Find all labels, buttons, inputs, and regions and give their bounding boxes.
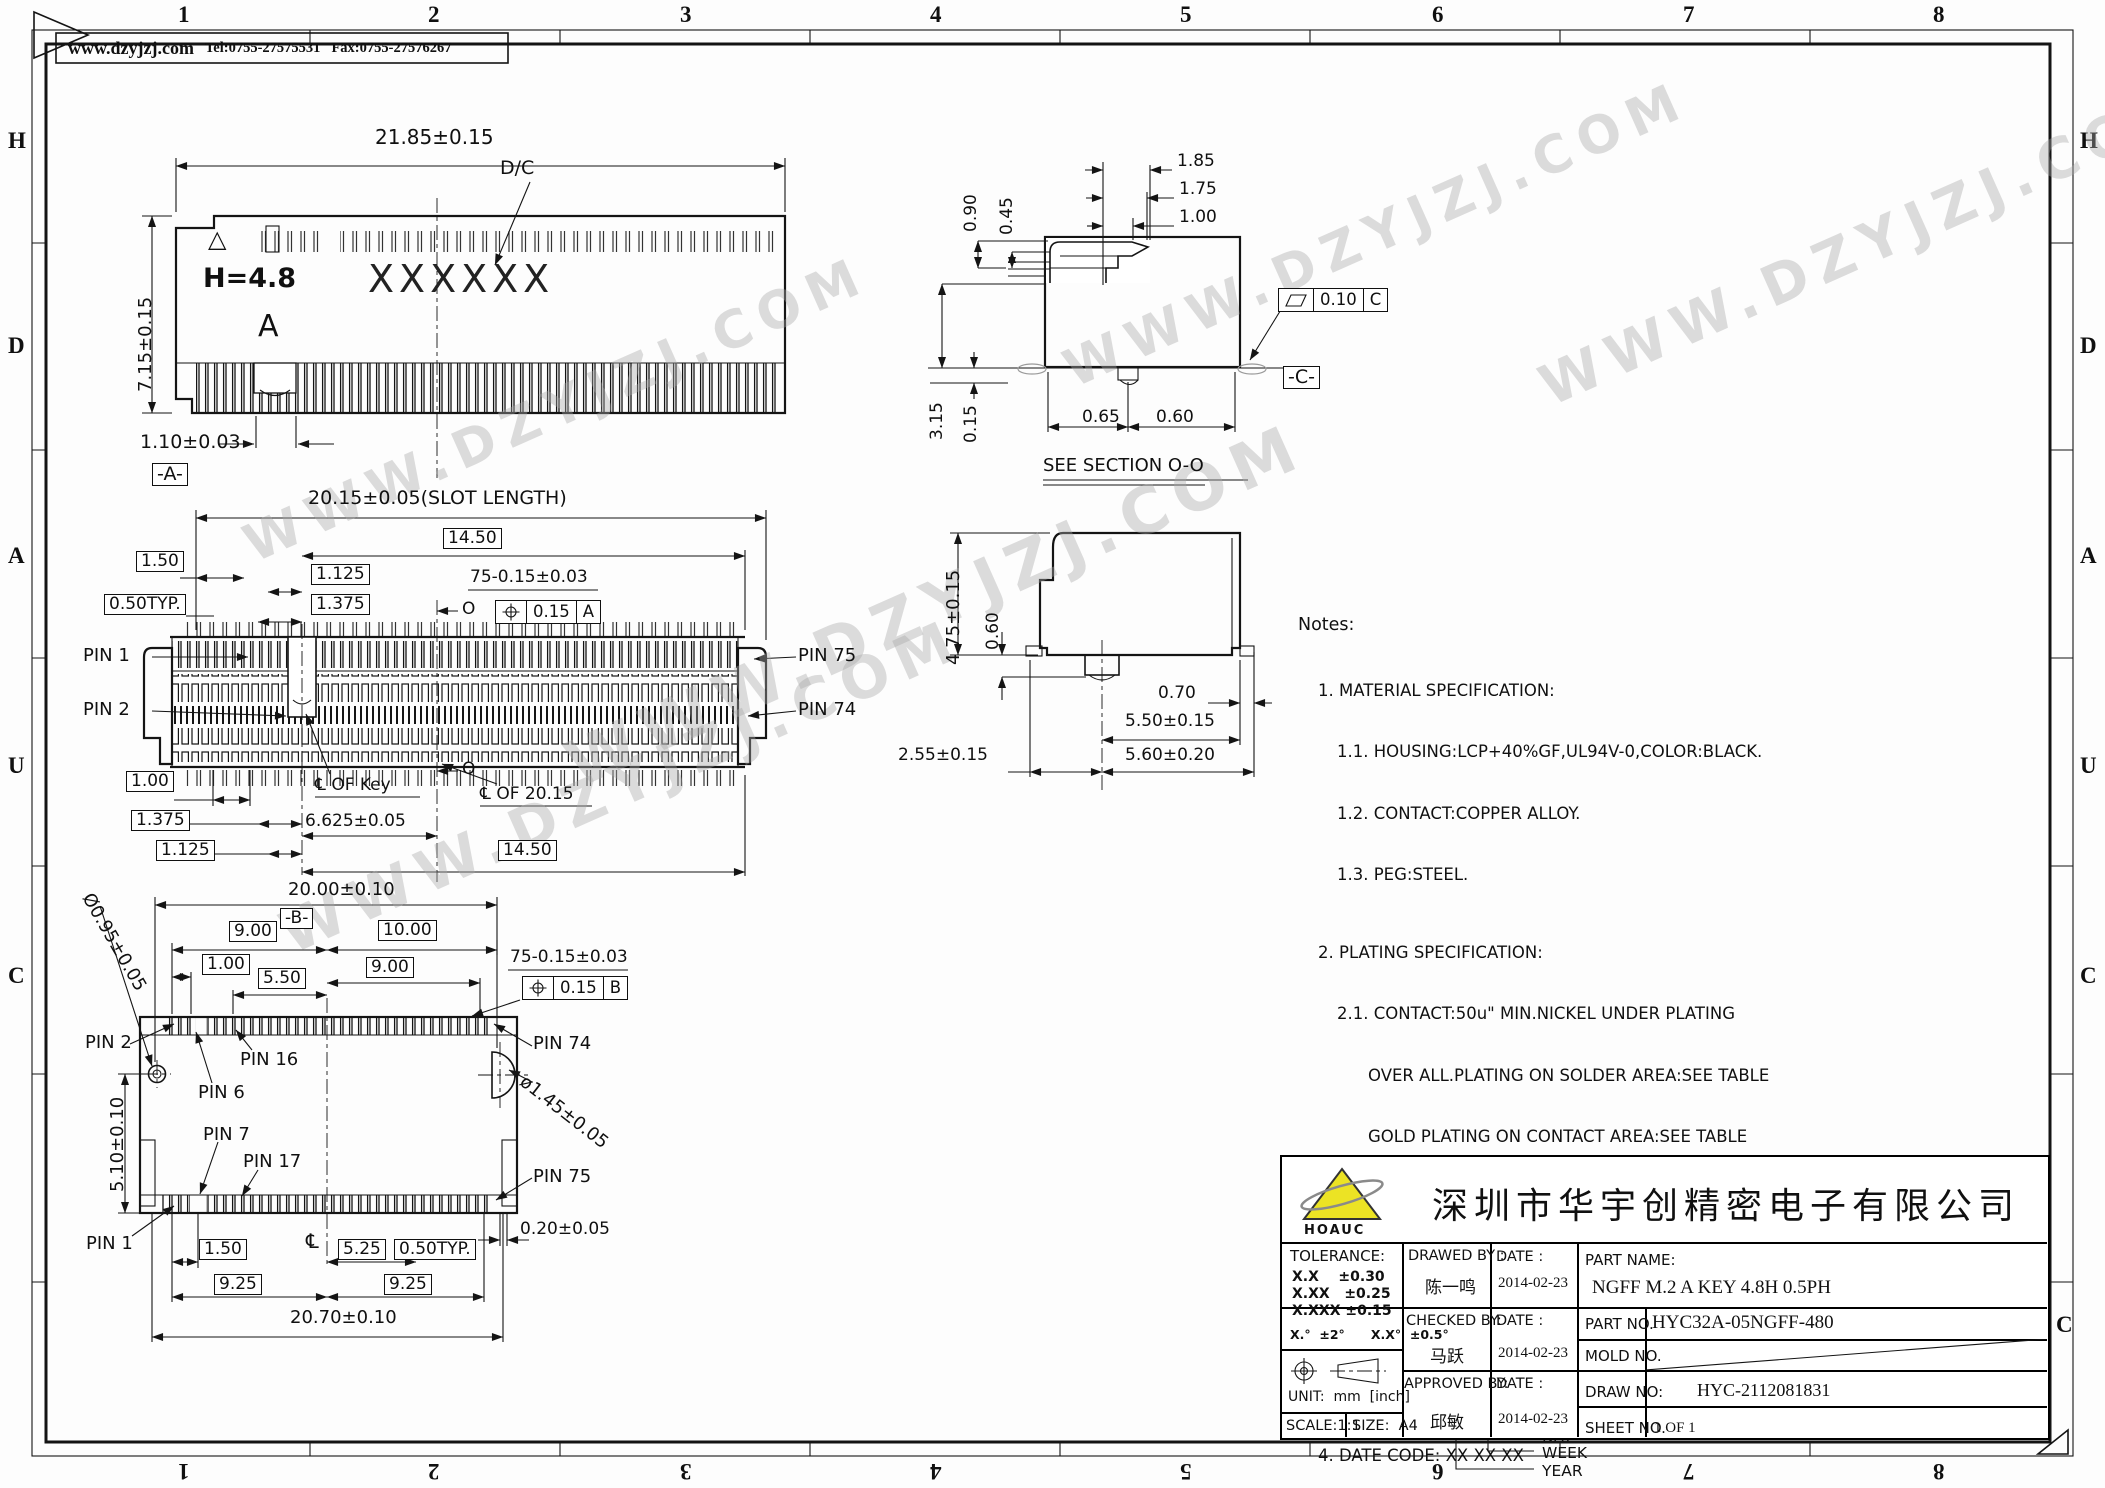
parallelism-icon [1279, 293, 1313, 308]
dim-1-00: 1.00 [202, 954, 250, 975]
dim-14-50-top: 14.50 [443, 528, 502, 549]
dim-20-00: 20.00±0.10 [288, 880, 395, 900]
logo-text: HOAUC [1304, 1223, 1365, 1238]
zone-number-top: 7 [1683, 2, 1695, 28]
company-logo-icon [1292, 1167, 1392, 1225]
pin-1-label: PIN 1 [86, 1234, 133, 1254]
centerline-of-key-label: ℄ OF Key [315, 776, 391, 795]
dim-0-65: 0.65 [1082, 408, 1120, 427]
tolerance-row: X.XX ±0.25 [1292, 1286, 1391, 1302]
datum-ref: A [576, 601, 600, 623]
zone-letter-left: D [8, 333, 25, 359]
dim-1-375-top: 1.375 [311, 594, 370, 615]
notes-title: Notes: [1298, 615, 2046, 636]
size-label: SIZE: A4 [1352, 1418, 1418, 1434]
pin-75-label: PIN 75 [798, 646, 856, 666]
note-line: 1.3. PEG:STEEL. [1298, 865, 2046, 886]
dim-1-00: 1.00 [126, 771, 174, 792]
dim-1-85: 1.85 [1177, 152, 1215, 171]
pin-75-label: PIN 75 [533, 1167, 591, 1187]
tolerance-value: 0.10 [1313, 289, 1363, 311]
centerline-symbol: ℄ [306, 1230, 319, 1252]
zone-number-top: 4 [930, 2, 942, 28]
pin-6-label: PIN 6 [198, 1083, 245, 1103]
zone-letter-left: C [8, 963, 25, 989]
zone-letter-right: C [2080, 963, 2097, 989]
dim-5-50: 5.50 [258, 968, 306, 989]
part-no-value: HYC32A-05NGFF-480 [1652, 1312, 1834, 1334]
date-stamp-marking: XXXXXX [368, 258, 554, 301]
title-block-line [1490, 1242, 1492, 1437]
zone-number-bottom: 2 [428, 1458, 440, 1484]
drawed-by-name: 陈一鸣 [1425, 1273, 1476, 1298]
note-line: GOLD PLATING ON CONTACT AREA:SEE TABLE [1298, 1127, 2046, 1148]
dim-5-25: 5.25 [338, 1239, 386, 1260]
dim-9-00-right: 9.00 [366, 957, 414, 978]
dim-1-375-bottom: 1.375 [131, 810, 190, 831]
pin-7-label: PIN 7 [203, 1125, 250, 1145]
dim-0-15: 0.15 [962, 405, 981, 443]
position-tolerance-icon [523, 979, 553, 997]
zone-letter-right: D [2080, 333, 2097, 359]
datum-ref: C [1363, 289, 1388, 311]
angle-tolerance-row: X.° ±2° X.X° ±0.5° [1290, 1327, 1449, 1342]
drawed-date: 2014-02-23 [1498, 1275, 1568, 1292]
centerline-of-slot-label: ℄ OF 20.15 [480, 785, 574, 804]
part-name-value: NGFF M.2 A KEY 4.8H 0.5PH [1592, 1277, 1831, 1299]
section-marker-top: O [462, 600, 475, 619]
dim-1-50: 1.50 [199, 1239, 247, 1260]
note-line: OVER ALL.PLATING ON SOLDER AREA:SEE TABL… [1298, 1066, 2046, 1087]
zone-letter-right-extra: C [2056, 1312, 2073, 1338]
checked-by-label: CHECKED BY: [1406, 1313, 1502, 1329]
dim-1-50: 1.50 [136, 551, 184, 572]
zone-letter-left: U [8, 753, 25, 779]
zone-letter-left: H [8, 128, 26, 154]
title-block-line [1282, 1412, 1402, 1414]
dim-1-00: 1.00 [1179, 208, 1217, 227]
pin-74-label: PIN 74 [798, 700, 856, 720]
zone-number-bottom: 4 [930, 1458, 942, 1484]
datum-a-box: -A- [152, 463, 188, 486]
dim-3-15: 3.15 [928, 402, 947, 440]
height-marking: H=4.8 [203, 264, 296, 294]
date-label: DATE : [1496, 1313, 1543, 1329]
dim-1-125-top: 1.125 [311, 564, 370, 585]
key-marking: A [258, 310, 279, 344]
contact-header: www.dzyjzj.com Tel:0755-27575531 Fax:075… [56, 33, 508, 63]
dim-0-60: 0.60 [1156, 408, 1194, 427]
tolerance-value: 0.15 [526, 601, 576, 623]
dim-tooth-width: 1.10±0.03 [140, 432, 241, 453]
dim-1-75: 1.75 [1179, 180, 1217, 199]
draw-no-value: HYC-2112081831 [1697, 1380, 1830, 1401]
tolerance-row: X.XXX ±0.15 [1292, 1303, 1392, 1319]
title-block-line [1402, 1370, 2047, 1372]
position-tolerance-frame-a: 0.15 A [495, 600, 601, 624]
zone-number-top: 3 [680, 2, 692, 28]
dim-slot-length: 20.15±0.05(SLOT LENGTH) [308, 488, 567, 509]
zone-number-bottom: 3 [680, 1458, 692, 1484]
dim-0-60: 0.60 [984, 612, 1003, 650]
title-block-line [1282, 1307, 2047, 1309]
fax-text: Fax:0755-27576267 [331, 40, 451, 57]
checked-by-name: 马跃 [1430, 1342, 1464, 1367]
date-code-pointer-label: D/C [500, 158, 534, 179]
part-name-label: PART NAME: [1585, 1251, 1676, 1269]
dim-5-50: 5.50±0.15 [1125, 712, 1215, 731]
zone-letter-right: A [2080, 543, 2097, 569]
dim-20-70: 20.70±0.10 [290, 1308, 397, 1328]
date-label: DATE : [1496, 1376, 1543, 1392]
position-tolerance-icon [496, 603, 526, 621]
dim-5-60: 5.60±0.20 [1125, 746, 1215, 765]
scale-label: SCALE:1:1 [1286, 1418, 1361, 1434]
dim-pin-count: 75-0.15±0.03 [470, 568, 588, 587]
datum-ref: B [603, 977, 627, 999]
dim-0-20: 0.20±0.05 [520, 1220, 610, 1239]
mold-no-empty-slash [1645, 1339, 2047, 1370]
title-block: HOAUC 深圳市华宇创精密电子有限公司 TOLERANCE: X.X ±0.3… [1280, 1155, 2050, 1440]
tel-text: Tel:0755-27575531 [205, 40, 320, 57]
note-line: 1.1. HOUSING:LCP+40%GF,UL94V-0,COLOR:BLA… [1298, 742, 2046, 763]
zone-number-top: 2 [428, 2, 440, 28]
dim-4-75: 4.75±0.15 [944, 570, 964, 665]
company-name: 深圳市华宇创精密电子有限公司 [1432, 1177, 2020, 1229]
zone-number-top: 1 [178, 2, 190, 28]
dim-14-50-bottom: 14.50 [498, 840, 557, 861]
datum-c-box: -C- [1283, 366, 1320, 389]
dim-0-90: 0.90 [962, 194, 981, 232]
dim-9-25-left: 9.25 [214, 1274, 262, 1295]
pin-2-label: PIN 2 [83, 700, 130, 720]
dim-0-70: 0.70 [1158, 684, 1196, 703]
zone-number-bottom: 1 [178, 1458, 190, 1484]
date-label: DATE : [1496, 1249, 1543, 1265]
dim-0-50-typ: 0.50TYP. [104, 594, 186, 615]
zone-letter-left: A [8, 543, 25, 569]
dim-5-10: 5.10±0.10 [108, 1097, 128, 1192]
datum-b-box: -B- [280, 908, 313, 929]
approved-by-label: APPROVED BY: [1404, 1376, 1508, 1392]
date-code-year: YEAR [1542, 1461, 1583, 1482]
dim-0-45: 0.45 [998, 197, 1017, 235]
section-caption: SEE SECTION O-O [1043, 456, 1204, 476]
part-no-label: PART NO. [1585, 1315, 1654, 1333]
tolerance-value: 0.15 [553, 977, 603, 999]
pin-1-label: PIN 1 [83, 646, 130, 666]
dim-0-50-typ: 0.50TYP. [394, 1239, 476, 1260]
sheet-no-value: 1 OF 1 [1654, 1420, 1696, 1437]
dim-9-00-left: 9.00 [229, 921, 277, 942]
position-tolerance-frame-b: 0.15 B [522, 976, 628, 1000]
note-line: 1.2. CONTACT:COPPER ALLOY. [1298, 804, 2046, 825]
dim-9-25-right: 9.25 [384, 1274, 432, 1295]
index-triangle-mark: △ [208, 226, 226, 253]
parallelism-tolerance-frame: 0.10 C [1278, 288, 1388, 312]
title-block-line [1282, 1242, 2047, 1244]
dim-6-625: 6.625±0.05 [305, 812, 406, 831]
note-line: 2. PLATING SPECIFICATION: [1298, 943, 2046, 964]
unit-label: UNIT: mm [inch] [1288, 1389, 1410, 1405]
zone-number-top: 6 [1432, 2, 1444, 28]
dim-pin-count: 75-0.15±0.03 [510, 948, 628, 967]
dim-overall-height: 7.15±0.15 [136, 297, 156, 392]
dim-10-00: 10.00 [378, 920, 437, 941]
pin-2-label: PIN 2 [85, 1033, 132, 1053]
approved-date: 2014-02-23 [1498, 1411, 1568, 1428]
website-text: www.dzyjzj.com [68, 38, 194, 59]
drawing-sheet: 1 2 3 4 5 6 7 8 1 2 3 4 5 6 7 8 H D A U … [0, 0, 2105, 1488]
note-line: 2.1. CONTACT:50u" MIN.NICKEL UNDER PLATI… [1298, 1004, 2046, 1025]
note-line: 1. MATERIAL SPECIFICATION: [1298, 681, 2046, 702]
pin-17-label: PIN 17 [243, 1152, 301, 1172]
title-block-line [1577, 1242, 1579, 1437]
pin-16-label: PIN 16 [240, 1050, 298, 1070]
drawed-by-label: DRAWED BY : [1408, 1248, 1505, 1264]
draw-no-label: DRAW NO: [1585, 1383, 1663, 1401]
section-marker-bottom: O [462, 760, 475, 779]
zone-number-bottom: 5 [1180, 1458, 1192, 1484]
zone-letter-right: U [2080, 753, 2097, 779]
approved-by-name: 邱敏 [1430, 1408, 1464, 1433]
tolerance-row: X.X ±0.30 [1292, 1269, 1385, 1285]
dim-overall-width: 21.85±0.15 [375, 126, 494, 148]
dim-1-125-bottom: 1.125 [156, 840, 215, 861]
dim-2-55: 2.55±0.15 [898, 746, 988, 765]
zone-number-top: 8 [1933, 2, 1945, 28]
zone-number-top: 5 [1180, 2, 1192, 28]
pin-74-label: PIN 74 [533, 1034, 591, 1054]
title-block-line [1577, 1406, 2047, 1408]
tolerance-title: TOLERANCE: [1290, 1247, 1385, 1265]
title-block-line [1282, 1349, 1402, 1351]
third-angle-projection-icon [1290, 1355, 1394, 1387]
checked-date: 2014-02-23 [1498, 1345, 1568, 1362]
